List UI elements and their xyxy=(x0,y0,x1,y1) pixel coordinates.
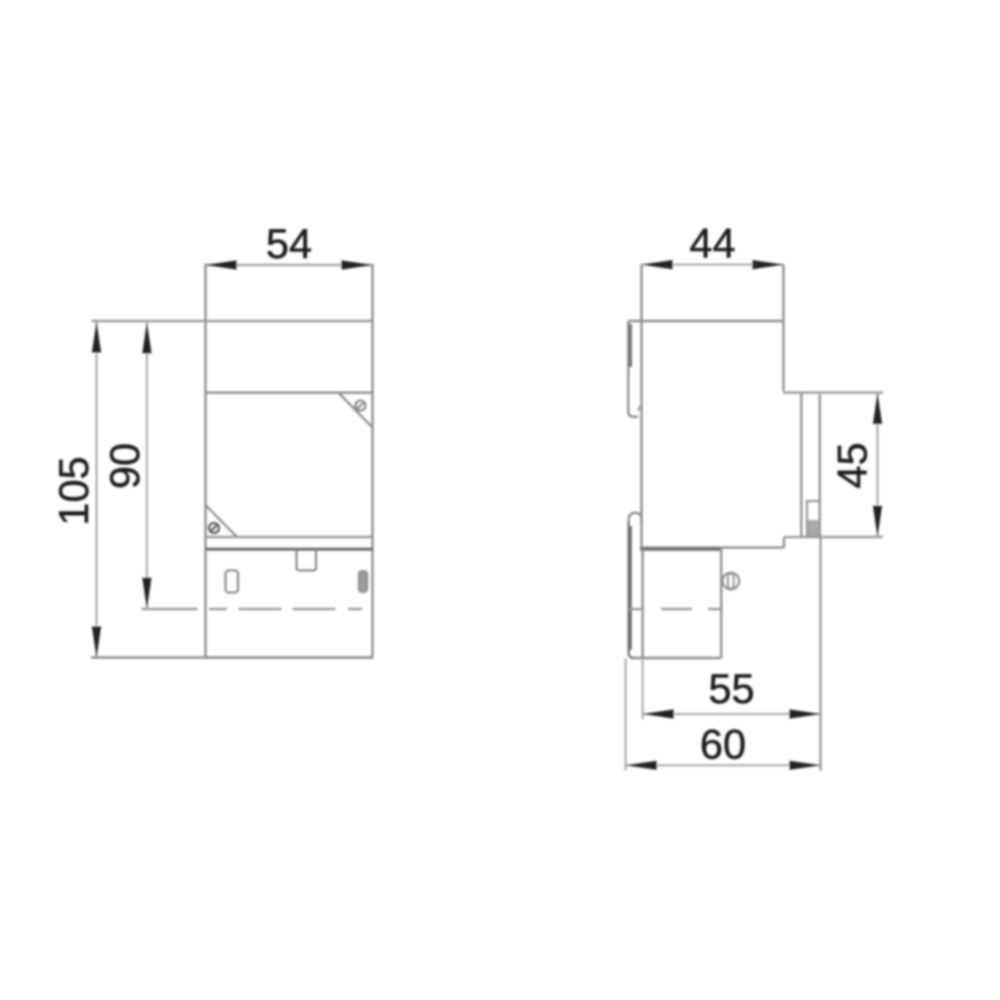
svg-text:90: 90 xyxy=(101,443,148,489)
svg-text:54: 54 xyxy=(266,220,312,267)
svg-text:45: 45 xyxy=(829,442,876,488)
svg-text:44: 44 xyxy=(689,220,735,267)
svg-text:60: 60 xyxy=(700,720,746,767)
svg-text:105: 105 xyxy=(50,456,97,525)
svg-text:55: 55 xyxy=(708,665,754,712)
